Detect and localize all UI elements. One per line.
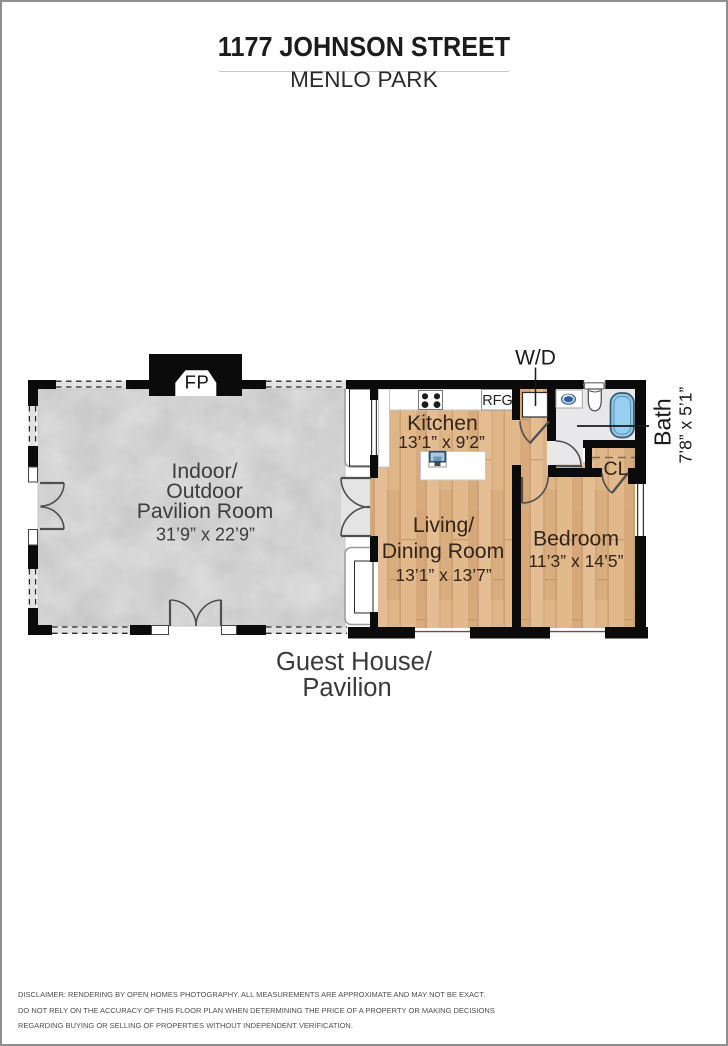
svg-text:Living/: Living/ bbox=[413, 514, 474, 537]
svg-text:31’9” x 22’9”: 31’9” x 22’9” bbox=[156, 525, 255, 545]
svg-text:11’3” x 14’5”: 11’3” x 14’5” bbox=[528, 551, 623, 571]
svg-text:W/D: W/D bbox=[515, 347, 556, 370]
svg-text:CL: CL bbox=[604, 458, 629, 480]
svg-text:Dining Room: Dining Room bbox=[382, 540, 504, 563]
svg-text:Bedroom: Bedroom bbox=[533, 528, 619, 551]
svg-text:Bath: Bath bbox=[650, 398, 676, 446]
svg-text:FP: FP bbox=[185, 372, 210, 393]
svg-text:13’1” x 13’7”: 13’1” x 13’7” bbox=[395, 565, 491, 585]
svg-text:7’8” x 5’1”: 7’8” x 5’1” bbox=[676, 386, 696, 463]
svg-text:Pavilion Room: Pavilion Room bbox=[137, 500, 274, 523]
svg-text:13’1” x 9’2”: 13’1” x 9’2” bbox=[398, 432, 485, 452]
svg-text:RFG: RFG bbox=[482, 393, 513, 409]
